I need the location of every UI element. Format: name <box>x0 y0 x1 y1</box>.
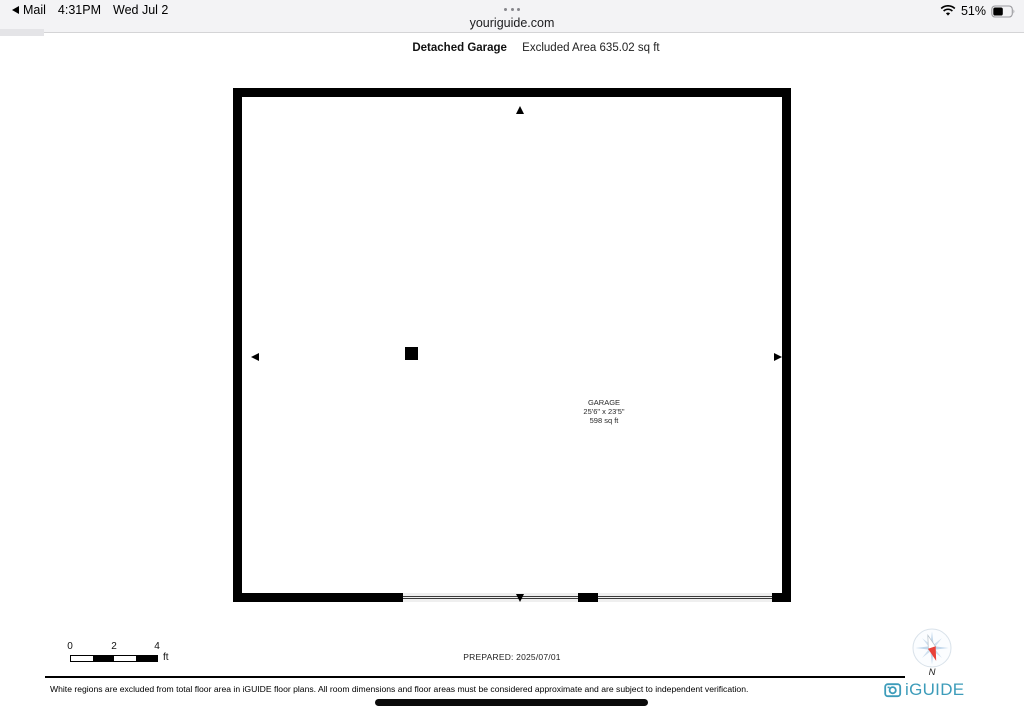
post-column <box>405 347 418 360</box>
compass-north-label: N <box>912 667 952 678</box>
scale-label-2: 2 <box>107 641 121 652</box>
garage-door-opening <box>403 593 578 602</box>
iguide-camera-icon <box>884 682 902 698</box>
battery-percent: 51% <box>961 4 986 18</box>
room-dimensions: 25'6" x 23'5" <box>504 407 704 416</box>
room-name: GARAGE <box>504 398 704 407</box>
screen: Mail 4:31PM Wed Jul 2 youriguide.com 51%… <box>0 0 1024 711</box>
excluded-area-label: Excluded Area 635.02 sq ft <box>522 42 659 54</box>
url-bar[interactable]: youriguide.com <box>0 16 1024 30</box>
iguide-wordmark: iGUIDE <box>905 680 964 700</box>
arrow-right-icon <box>774 353 782 361</box>
bottom-wall <box>233 593 791 602</box>
arrow-left-icon <box>251 353 259 361</box>
page-title: Detached Garage <box>412 42 507 54</box>
ellipsis-dots-icon[interactable] <box>0 8 1024 11</box>
battery-icon <box>991 5 1016 18</box>
wall-segment <box>233 593 403 602</box>
status-bar: Mail 4:31PM Wed Jul 2 youriguide.com 51% <box>0 0 1024 33</box>
floorplan-outline: GARAGE 25'6" x 23'5" 598 sq ft <box>233 88 791 602</box>
plan-header: Detached Garage Excluded Area 635.02 sq … <box>0 42 1024 54</box>
scale-label-4: 4 <box>150 641 164 652</box>
home-indicator[interactable] <box>375 699 648 706</box>
prepared-date: PREPARED: 2025/07/01 <box>0 652 1024 662</box>
wifi-icon <box>940 5 956 17</box>
wall-segment <box>772 593 791 602</box>
scroll-edge-artifact <box>0 29 44 36</box>
footer-divider <box>45 676 905 678</box>
iguide-logo[interactable]: iGUIDE <box>884 680 964 700</box>
arrow-down-icon <box>516 594 524 602</box>
wall-segment <box>578 593 598 602</box>
arrow-up-icon <box>516 106 524 114</box>
disclaimer-text: White regions are excluded from total fl… <box>50 684 830 694</box>
scale-label-0: 0 <box>63 641 77 652</box>
room-area: 598 sq ft <box>504 416 704 425</box>
garage-door-opening <box>598 593 772 602</box>
compass-icon <box>912 628 952 668</box>
room-label: GARAGE 25'6" x 23'5" 598 sq ft <box>504 398 704 425</box>
